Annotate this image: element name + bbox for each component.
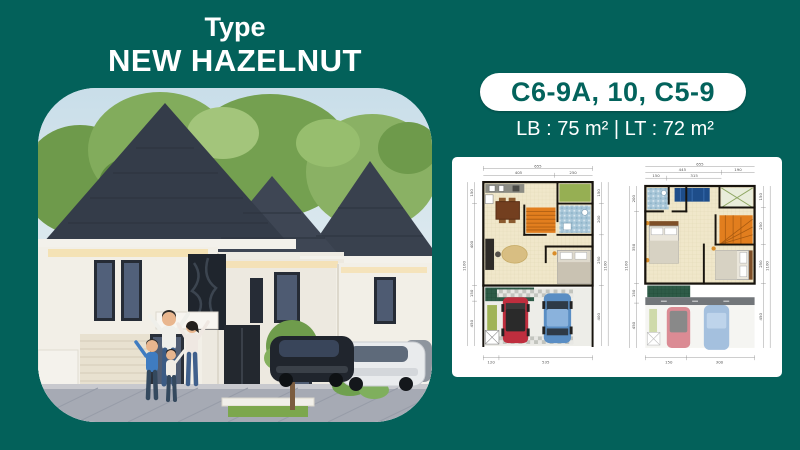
dim-label: 250 — [569, 170, 577, 175]
bedroom2-bed — [711, 246, 752, 279]
uf-lower-area — [645, 286, 754, 350]
dim-label: 1100 — [765, 261, 770, 271]
dim-label: 150 — [469, 189, 474, 197]
ghosted-carport — [645, 305, 754, 350]
dim-label: 450 — [631, 321, 636, 329]
dim-label: 655 — [696, 161, 704, 166]
black-suv — [270, 336, 354, 387]
house-render-image — [38, 88, 432, 422]
dim-label: 315 — [690, 173, 698, 178]
dim-label: 190 — [734, 167, 742, 172]
flyer-page: Type NEW HAZELNUT — [0, 0, 800, 450]
blue-bed — [675, 188, 710, 202]
staircase — [526, 207, 555, 232]
blue-car — [542, 293, 572, 343]
dim-label: 1100 — [603, 261, 608, 271]
unit-badge: C6-9A, 10, C5-9 — [480, 73, 746, 111]
dim-label: 200 — [631, 194, 636, 202]
dining-set — [496, 198, 519, 223]
dim-label: 200 — [596, 215, 601, 223]
dim-label: 250 — [758, 222, 763, 230]
dim-label: 150 — [652, 173, 660, 178]
dim-label: 150 — [631, 289, 636, 297]
dim-label: 300 — [716, 360, 724, 365]
floor-plans-panel: 655 405 250 120 535 1100 150 400 150 450 — [452, 157, 782, 377]
dim-label: 400 — [596, 313, 601, 321]
dim-label: 450 — [758, 313, 763, 321]
dim-label: 655 — [534, 163, 542, 168]
dim-label: 535 — [542, 360, 550, 365]
dim-label: 250 — [596, 256, 601, 264]
dim-label: 1100 — [462, 261, 467, 271]
type-label: Type — [40, 12, 430, 43]
bedroom-bed — [552, 250, 590, 283]
ground-floor-plan: 655 405 250 120 535 1100 150 400 150 450 — [456, 160, 616, 374]
house-type-name: NEW HAZELNUT — [40, 43, 430, 79]
unit-badge-label: C6-9A, 10, C5-9 — [511, 77, 715, 108]
uf-rooms — [645, 186, 754, 284]
rug — [502, 246, 527, 264]
void-area — [721, 188, 752, 208]
staircase — [719, 215, 752, 244]
area-info: LB : 75 m² | LT : 72 m² — [450, 118, 780, 141]
dim-label: 150 — [665, 360, 673, 365]
dim-label: 1100 — [624, 261, 629, 271]
dim-label: 450 — [469, 319, 474, 327]
dim-label: 400 — [469, 240, 474, 248]
piano — [485, 239, 494, 270]
dim-label: 150 — [469, 289, 474, 297]
dim-label: 445 — [679, 167, 687, 172]
gf-frontyard — [483, 286, 592, 346]
bedroom1-bed — [645, 221, 678, 263]
dim-label: 250 — [758, 260, 763, 268]
dim-label: 350 — [631, 243, 636, 251]
dim-label: 120 — [487, 360, 495, 365]
house-render-scene — [38, 88, 432, 422]
red-car — [501, 297, 529, 343]
title-block: Type NEW HAZELNUT — [40, 12, 430, 79]
garden-patch — [559, 184, 590, 202]
dim-label: 150 — [758, 193, 763, 201]
dim-label: 405 — [515, 170, 523, 175]
dim-label: 150 — [596, 189, 601, 197]
upper-floor-plan: 655 445 190 150 315 150 300 1100 200 350 — [618, 160, 778, 374]
balcony — [647, 286, 690, 298]
